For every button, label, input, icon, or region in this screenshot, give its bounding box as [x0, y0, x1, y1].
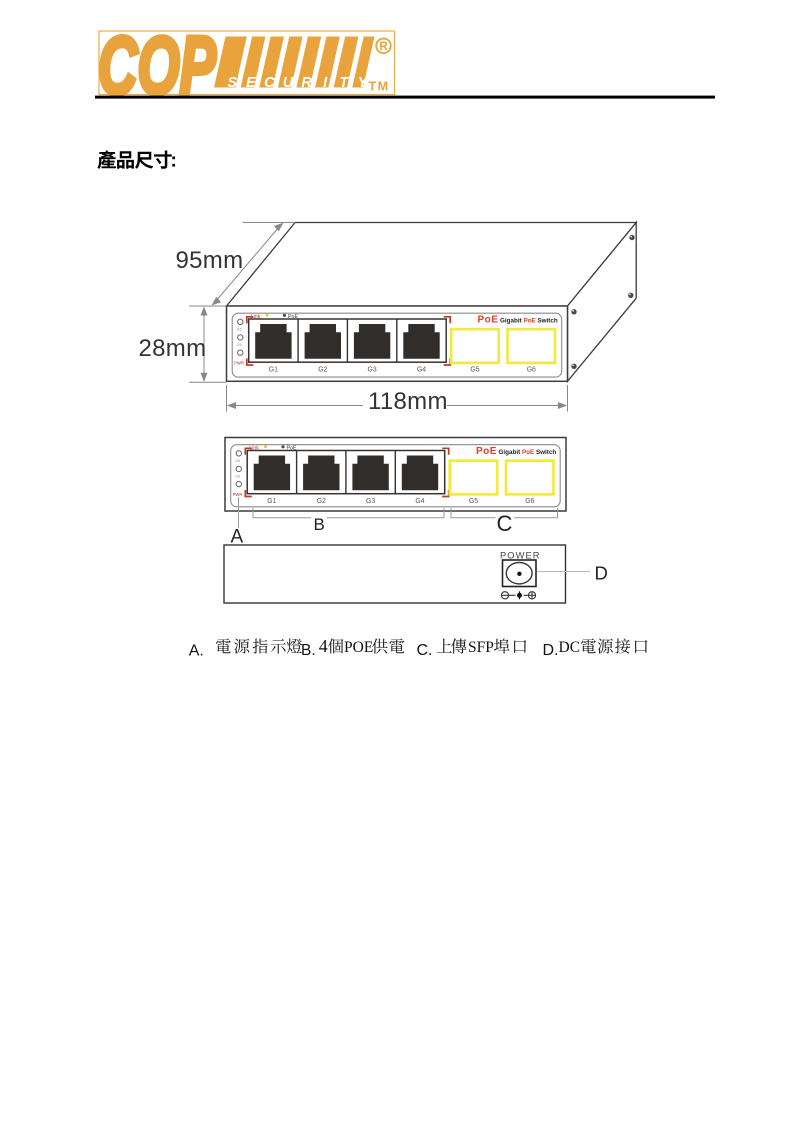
svg-text:D.: D.: [543, 642, 559, 659]
svg-text:118mm: 118mm: [368, 388, 448, 415]
svg-text:POWER: POWER: [500, 550, 541, 560]
svg-text:G1: G1: [267, 498, 276, 505]
svg-text:G4: G4: [415, 498, 424, 505]
svg-text:28mm: 28mm: [139, 335, 207, 362]
svg-text:G2: G2: [317, 498, 326, 505]
svg-text:95mm: 95mm: [176, 247, 244, 274]
svg-text:TM: TM: [369, 80, 390, 94]
svg-text:G1: G1: [269, 367, 278, 374]
svg-text:A.: A.: [189, 643, 204, 660]
svg-text::: :: [171, 151, 177, 172]
svg-text:R: R: [379, 41, 388, 53]
svg-text:Gigabit PoE Switch: Gigabit PoE Switch: [500, 318, 558, 325]
svg-text:4: 4: [319, 636, 328, 656]
svg-text:G4: G4: [417, 367, 426, 374]
svg-text:G5: G5: [237, 327, 242, 331]
svg-text:POE: POE: [344, 639, 373, 656]
svg-text:PWR: PWR: [233, 492, 243, 497]
svg-text:B.: B.: [301, 642, 316, 659]
svg-text:G6: G6: [237, 343, 242, 347]
svg-text:PoE: PoE: [476, 446, 497, 457]
svg-text:G5: G5: [469, 498, 478, 505]
svg-text:B: B: [314, 515, 325, 534]
svg-text:G5: G5: [235, 459, 240, 463]
svg-text:G6: G6: [527, 367, 536, 374]
svg-text:G6: G6: [235, 475, 240, 479]
svg-text:DC: DC: [559, 639, 581, 656]
svg-text:C.: C.: [417, 642, 433, 659]
svg-text:G3: G3: [367, 367, 376, 374]
svg-text:PoE: PoE: [478, 315, 499, 326]
svg-text:SFP: SFP: [468, 639, 494, 656]
svg-text:G5: G5: [470, 367, 479, 374]
svg-text:G6: G6: [525, 498, 534, 505]
svg-text:D: D: [595, 563, 608, 584]
svg-text:G2: G2: [318, 367, 327, 374]
svg-text:PWR: PWR: [234, 360, 244, 365]
svg-text:G3: G3: [366, 498, 375, 505]
svg-text:Gigabit PoE Switch: Gigabit PoE Switch: [499, 449, 557, 456]
svg-text:C: C: [497, 511, 513, 536]
